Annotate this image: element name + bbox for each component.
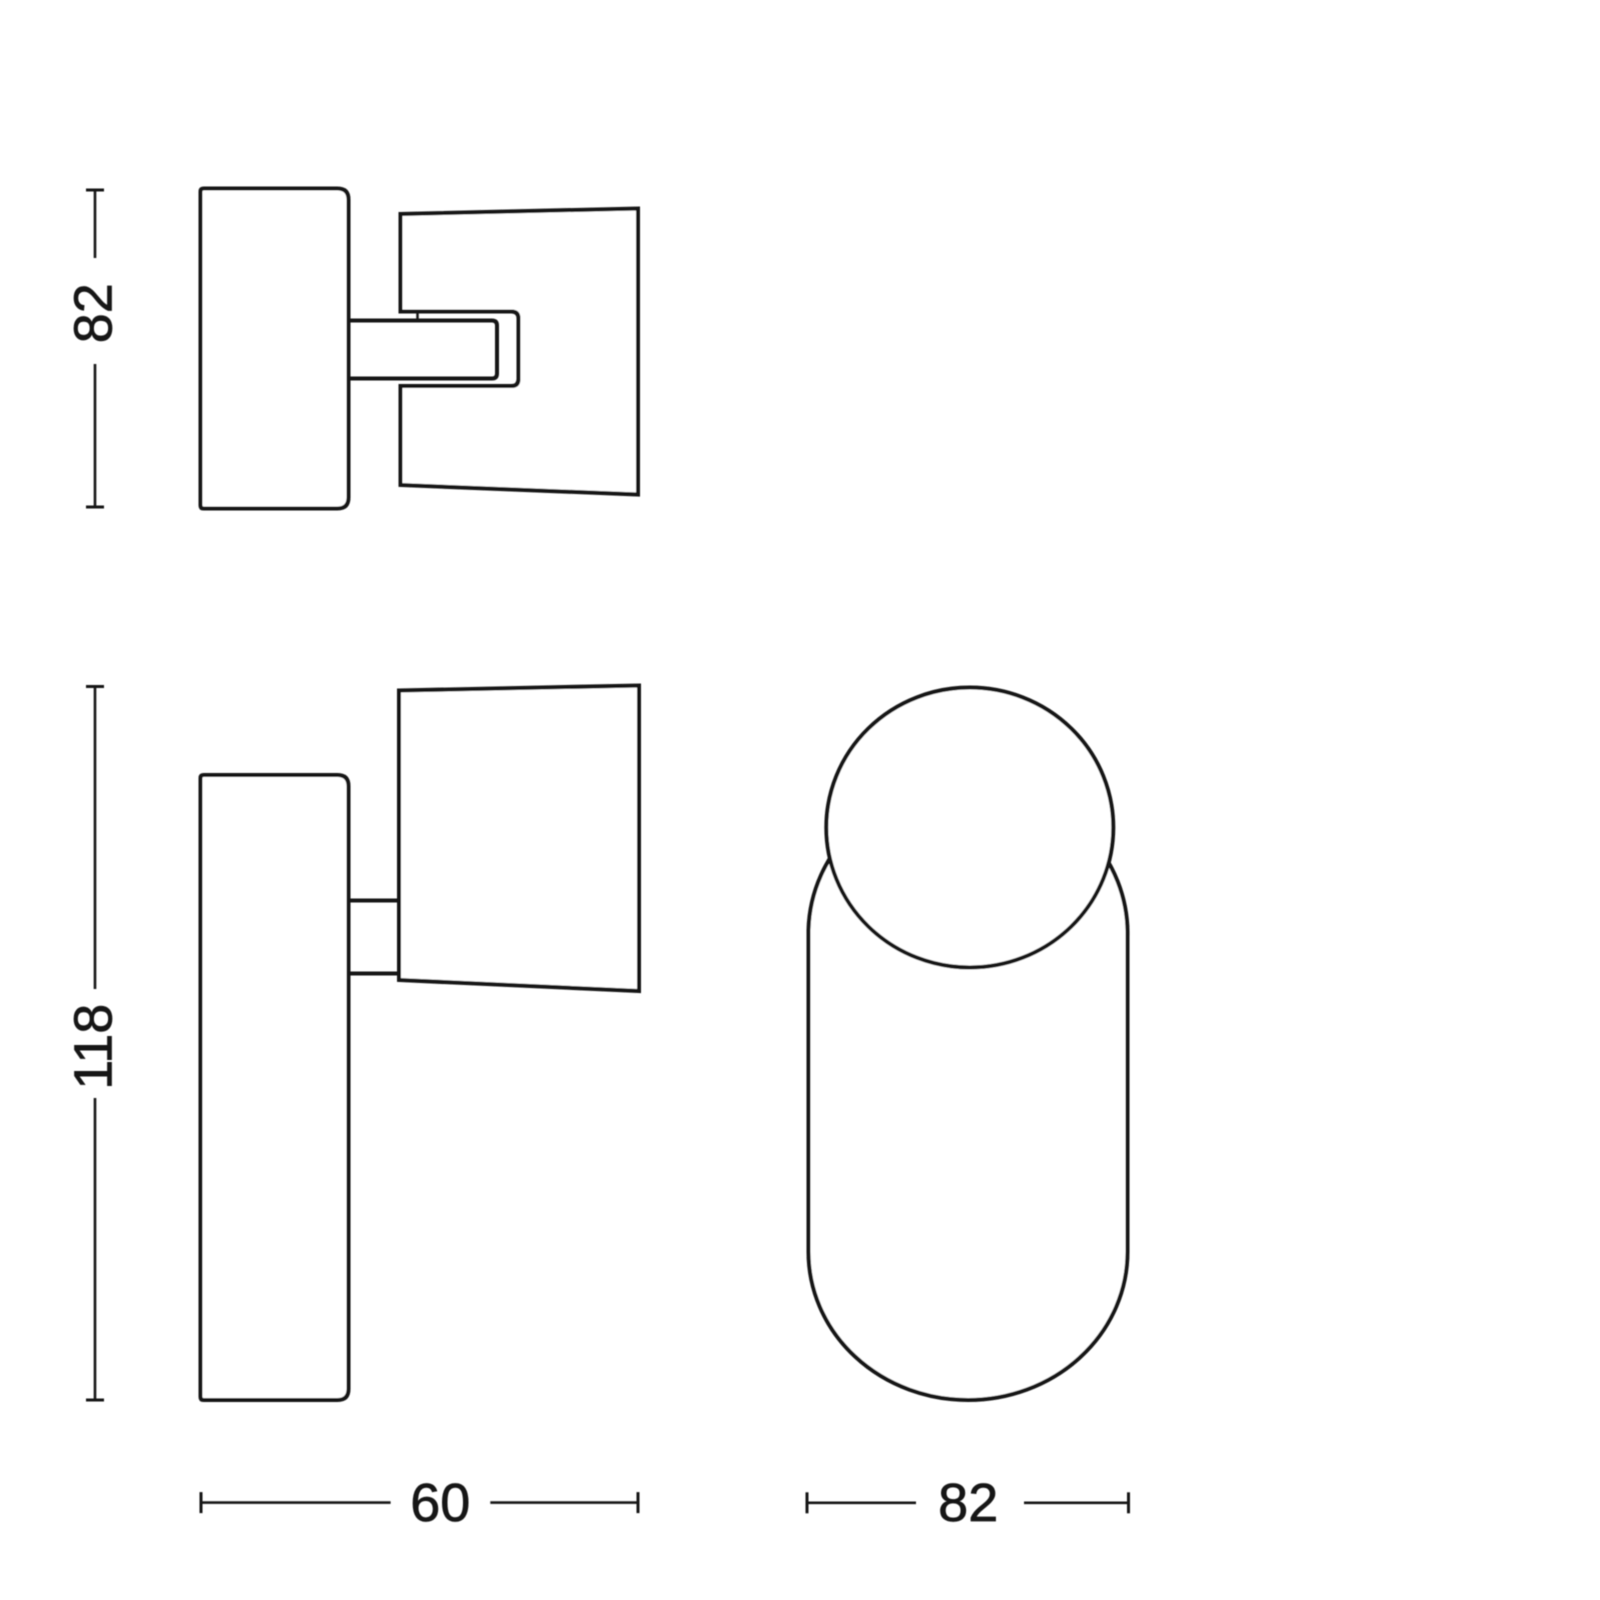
svg-text:60: 60 [410,1473,470,1533]
svg-text:82: 82 [938,1473,998,1533]
svg-text:118: 118 [64,1004,124,1090]
svg-text:82: 82 [64,283,124,343]
